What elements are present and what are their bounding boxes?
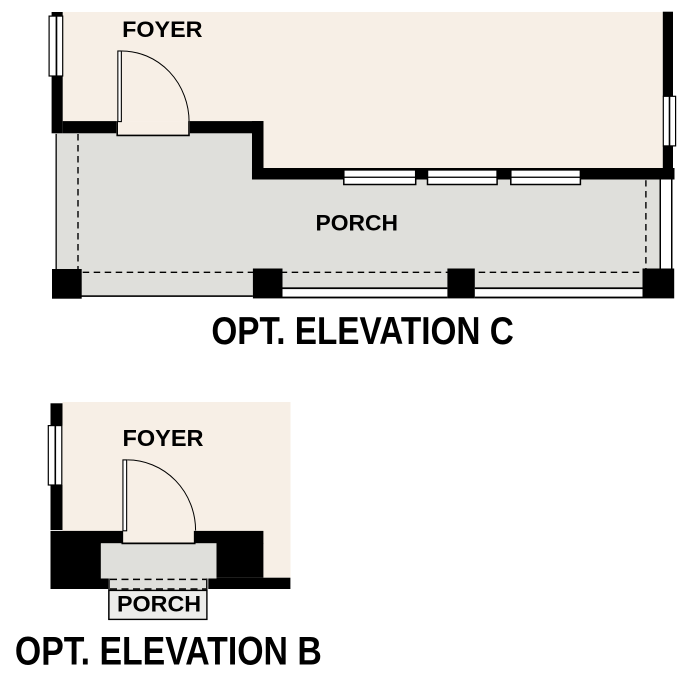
svg-text:FOYER: FOYER xyxy=(123,425,204,451)
svg-text:OPT. ELEVATION B: OPT. ELEVATION B xyxy=(15,630,322,674)
svg-text:FOYER: FOYER xyxy=(122,17,202,42)
svg-text:OPT. ELEVATION C: OPT. ELEVATION C xyxy=(211,310,513,353)
svg-text:PORCH: PORCH xyxy=(316,211,399,236)
svg-text:PORCH: PORCH xyxy=(117,591,201,616)
